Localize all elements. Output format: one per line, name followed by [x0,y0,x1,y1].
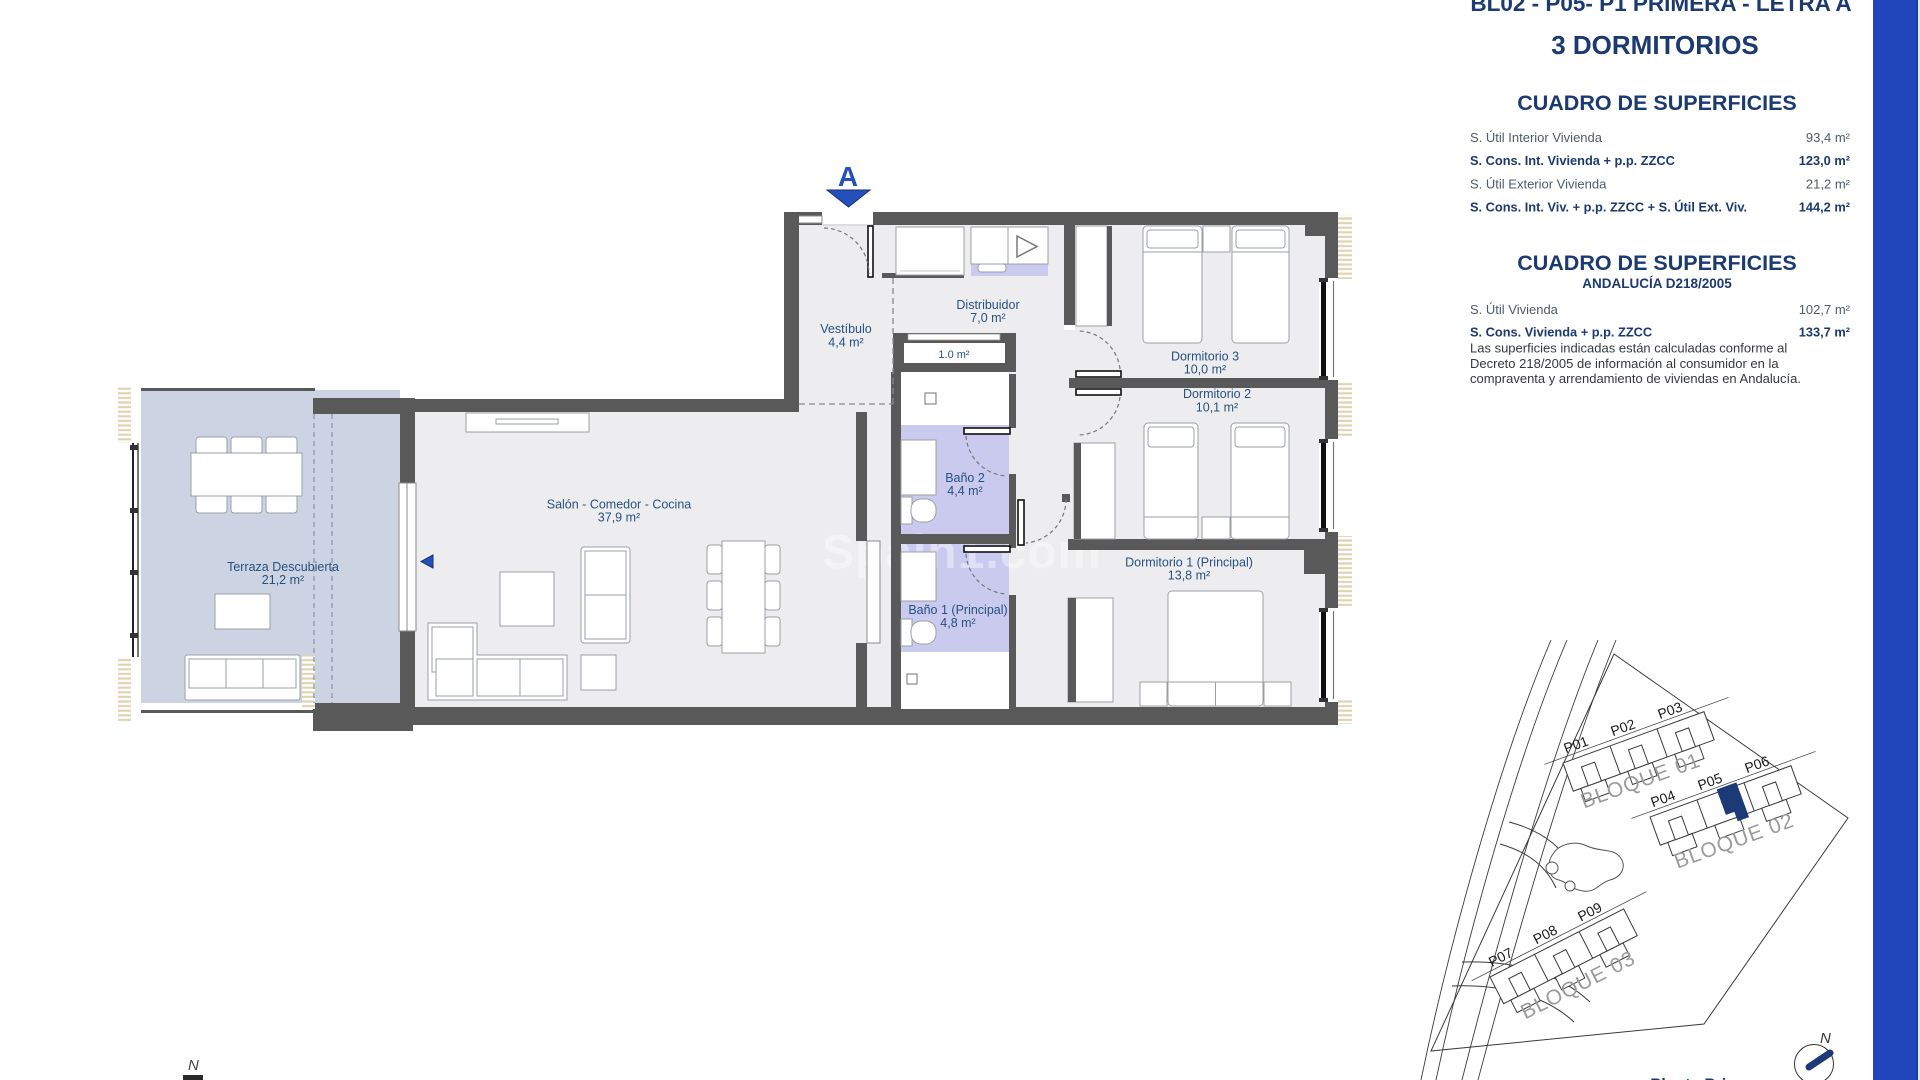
svg-text:compraventa y arrendamiento de: compraventa y arrendamiento de viviendas… [1470,371,1801,386]
svg-text:A: A [838,161,858,192]
svg-text:1.0 m²: 1.0 m² [938,349,970,361]
svg-text:Planta Primera: Planta Primera [1650,1076,1766,1080]
svg-text:S. Cons. Int. Vivienda + p.p.: S. Cons. Int. Vivienda + p.p. ZZCC [1470,153,1675,168]
svg-text:Vestíbulo: Vestíbulo [820,322,871,336]
svg-text:CUADRO DE SUPERFICIES: CUADRO DE SUPERFICIES [1517,251,1797,275]
svg-text:N: N [188,1057,199,1074]
svg-text:4,4 m²: 4,4 m² [828,336,863,350]
svg-text:10,0 m²: 10,0 m² [1184,363,1226,377]
svg-text:ANDALUCÍA D218/2005: ANDALUCÍA D218/2005 [1582,276,1732,291]
svg-text:4,8 m²: 4,8 m² [940,616,975,630]
svg-text:S. Útil Exterior Vivienda: S. Útil Exterior Vivienda [1470,177,1607,192]
svg-text:7,0 m²: 7,0 m² [970,311,1005,325]
svg-text:BL02 - P05- P1 PRIMERA - LETRA: BL02 - P05- P1 PRIMERA - LETRA A [1470,0,1851,16]
svg-text:10,1 m²: 10,1 m² [1196,401,1238,415]
svg-text:3 DORMITORIOS: 3 DORMITORIOS [1551,30,1759,60]
svg-text:21,2 m²: 21,2 m² [1806,177,1851,192]
svg-text:Baño 2: Baño 2 [945,471,985,485]
svg-text:21,2 m²: 21,2 m² [262,573,304,587]
svg-text:102,7 m²: 102,7 m² [1799,302,1851,317]
svg-text:123,0 m²: 123,0 m² [1799,153,1850,168]
svg-text:Dormitorio 1 (Principal): Dormitorio 1 (Principal) [1125,556,1253,570]
svg-text:13,8 m²: 13,8 m² [1168,569,1210,583]
svg-text:CUADRO DE SUPERFICIES: CUADRO DE SUPERFICIES [1517,91,1797,115]
svg-text:Terraza Descubierta: Terraza Descubierta [227,560,339,574]
svg-text:Dormitorio 2: Dormitorio 2 [1183,387,1251,401]
svg-text:133,7 m²: 133,7 m² [1799,325,1850,340]
svg-text:Salón - Comedor - Cocina: Salón - Comedor - Cocina [547,498,692,512]
svg-text:4,4 m²: 4,4 m² [947,484,982,498]
svg-text:37,9 m²: 37,9 m² [598,511,640,525]
svg-text:Decreto 218/2005 de informació: Decreto 218/2005 de información al consu… [1470,356,1779,371]
svg-text:S. Cons. Vivienda + p.p. ZZCC: S. Cons. Vivienda + p.p. ZZCC [1470,325,1652,340]
svg-text:S. Útil Interior Vivienda: S. Útil Interior Vivienda [1470,130,1603,145]
svg-text:Las superficies indicadas está: Las superficies indicadas están calculad… [1470,341,1787,356]
svg-text:144,2 m²: 144,2 m² [1799,200,1850,215]
svg-text:S. Cons. Int. Viv. + p.p. ZZCC: S. Cons. Int. Viv. + p.p. ZZCC + S. Útil… [1470,200,1747,215]
svg-text:N: N [1820,1030,1831,1047]
svg-text:Baño 1 (Principal): Baño 1 (Principal) [908,603,1007,617]
svg-text:Distribuidor: Distribuidor [956,298,1019,312]
svg-text:Dormitorio 3: Dormitorio 3 [1171,350,1239,364]
svg-text:93,4 m²: 93,4 m² [1806,130,1851,145]
svg-text:S. Útil Vivienda: S. Útil Vivienda [1470,302,1559,317]
